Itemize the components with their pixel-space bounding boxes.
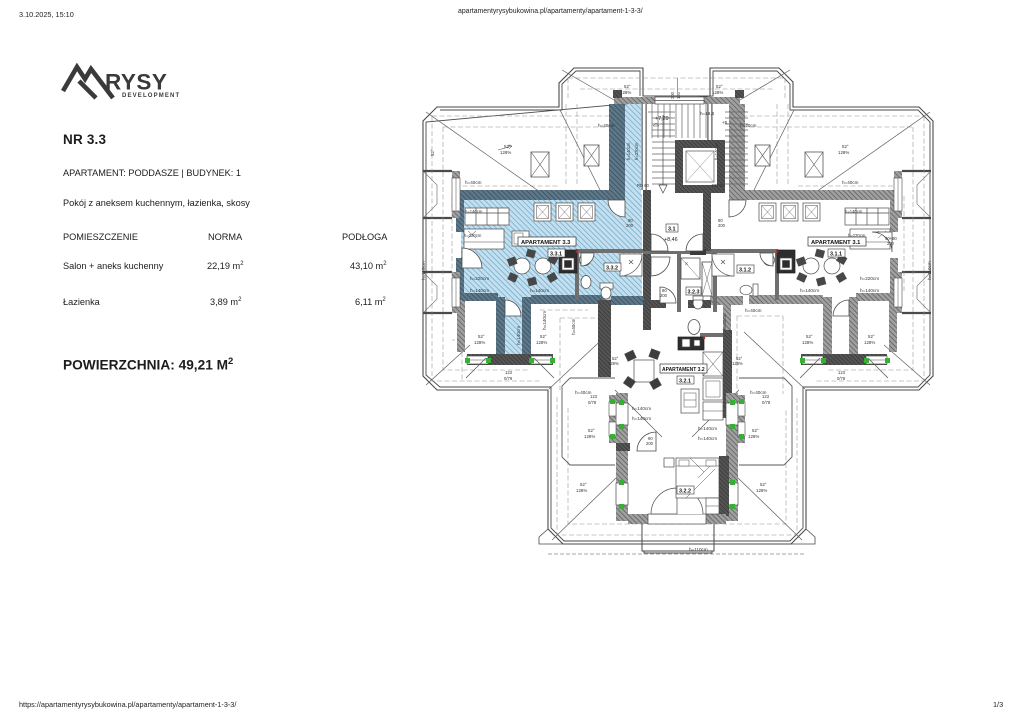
svg-text:0/78: 0/78 — [762, 400, 771, 405]
svg-text:200: 200 — [670, 91, 675, 99]
svg-text:123: 123 — [590, 394, 598, 399]
svg-text:52°: 52° — [760, 482, 767, 487]
svg-text:APARTAMENT 3.1: APARTAMENT 3.1 — [811, 240, 861, 246]
svg-text:200: 200 — [660, 293, 668, 298]
svg-text:128%: 128% — [732, 361, 743, 366]
svg-text:RD 60: RD 60 — [637, 183, 650, 188]
svg-text:+7,29: +7,29 — [655, 116, 669, 122]
svg-text:128%: 128% — [608, 361, 619, 366]
svg-text:128%: 128% — [756, 488, 767, 493]
svg-text:52°: 52° — [540, 334, 547, 339]
svg-text:h=40cm: h=40cm — [740, 123, 757, 128]
svg-text:128%: 128% — [838, 150, 849, 155]
svg-text:h=140cm: h=140cm — [626, 142, 631, 160]
svg-text:3.2.1: 3.2.1 — [679, 379, 691, 385]
svg-text:3.1.2: 3.1.2 — [739, 268, 751, 274]
svg-text:h=40cm: h=40cm — [571, 318, 576, 335]
svg-text:52°: 52° — [842, 144, 849, 149]
svg-text:52°: 52° — [430, 149, 435, 156]
svg-text:52°: 52° — [478, 334, 485, 339]
svg-text:h=140cm: h=140cm — [860, 288, 879, 293]
svg-text:0/78: 0/78 — [837, 376, 846, 381]
svg-text:123: 123 — [762, 394, 770, 399]
svg-text:h=140cm: h=140cm — [470, 288, 489, 293]
svg-text:h=140cm: h=140cm — [845, 209, 863, 214]
svg-text:h=140cm: h=140cm — [800, 288, 819, 293]
svg-text:h=140cm: h=140cm — [516, 326, 521, 345]
svg-text:128%: 128% — [576, 488, 587, 493]
svg-text:h=40cm: h=40cm — [745, 308, 762, 313]
svg-text:128%: 128% — [620, 90, 631, 95]
svg-text:123: 123 — [505, 370, 513, 375]
svg-text:3.3.1: 3.3.1 — [550, 252, 562, 258]
svg-text:128%: 128% — [584, 434, 595, 439]
svg-text:h=140cm: h=140cm — [542, 311, 547, 330]
svg-text:52°: 52° — [716, 84, 723, 89]
svg-text:200: 200 — [887, 241, 895, 246]
svg-text:h=220cm: h=220cm — [634, 142, 639, 160]
svg-text:h=110cm: h=110cm — [927, 261, 932, 280]
svg-text:123: 123 — [838, 370, 846, 375]
svg-text:h=40cm: h=40cm — [722, 313, 727, 330]
svg-text:h=140cm: h=140cm — [698, 436, 717, 441]
svg-text:200: 200 — [626, 223, 634, 228]
svg-text:128%: 128% — [474, 340, 485, 345]
svg-text:3.1: 3.1 — [668, 227, 676, 233]
svg-text:128%: 128% — [802, 340, 813, 345]
svg-text:52°: 52° — [806, 334, 813, 339]
svg-text:3.2.2: 3.2.2 — [679, 489, 691, 495]
svg-text:200: 200 — [718, 223, 726, 228]
svg-text:APARTAMENT 3.3: APARTAMENT 3.3 — [521, 240, 571, 246]
svg-text:h=140cm: h=140cm — [530, 288, 549, 293]
svg-text:128%: 128% — [712, 90, 723, 95]
svg-text:h=220cm: h=220cm — [848, 233, 866, 238]
svg-text:0/78: 0/78 — [588, 400, 597, 405]
svg-text:3.1.1: 3.1.1 — [830, 252, 842, 258]
svg-text:h=140cm: h=140cm — [632, 406, 651, 411]
svg-text:APARTAMENT 3.2: APARTAMENT 3.2 — [662, 367, 705, 373]
svg-text:h=110cm: h=110cm — [421, 261, 426, 280]
svg-text:+8,46: +8,46 — [664, 237, 678, 243]
svg-text:h=40cm: h=40cm — [465, 180, 482, 185]
svg-text:120: 120 — [676, 91, 681, 99]
svg-text:52°: 52° — [624, 84, 631, 89]
svg-text:128%: 128% — [748, 434, 759, 439]
svg-text:h=18,6: h=18,6 — [700, 111, 715, 116]
svg-text:0/78: 0/78 — [504, 376, 513, 381]
svg-text:128%: 128% — [500, 150, 511, 155]
svg-text:h=40cm: h=40cm — [598, 123, 615, 128]
svg-text:3.2.3: 3.2.3 — [688, 290, 700, 296]
svg-text:h=110cm: h=110cm — [689, 547, 708, 552]
svg-text:52°: 52° — [588, 428, 595, 433]
svg-text:128%: 128% — [536, 340, 547, 345]
svg-text:h=40cm: h=40cm — [842, 180, 859, 185]
svg-text:52°: 52° — [868, 334, 875, 339]
svg-text:200: 200 — [646, 441, 654, 446]
svg-text:128%: 128% — [864, 340, 875, 345]
svg-text:3.3.2: 3.3.2 — [606, 266, 618, 272]
svg-text:h=140cm: h=140cm — [698, 426, 717, 431]
svg-text:h=220cm: h=220cm — [464, 233, 482, 238]
svg-text:h=220cm: h=220cm — [860, 276, 879, 281]
svg-text:h=140cm: h=140cm — [465, 209, 483, 214]
svg-text:h=140cm: h=140cm — [714, 142, 719, 160]
svg-text:52°: 52° — [752, 428, 759, 433]
svg-text:h=140cm: h=140cm — [632, 416, 651, 421]
svg-text:52°: 52° — [580, 482, 587, 487]
svg-text:h=220cm: h=220cm — [470, 276, 489, 281]
svg-text:RD 60: RD 60 — [712, 183, 725, 188]
svg-text:+5,..: +5,.. — [722, 120, 731, 125]
